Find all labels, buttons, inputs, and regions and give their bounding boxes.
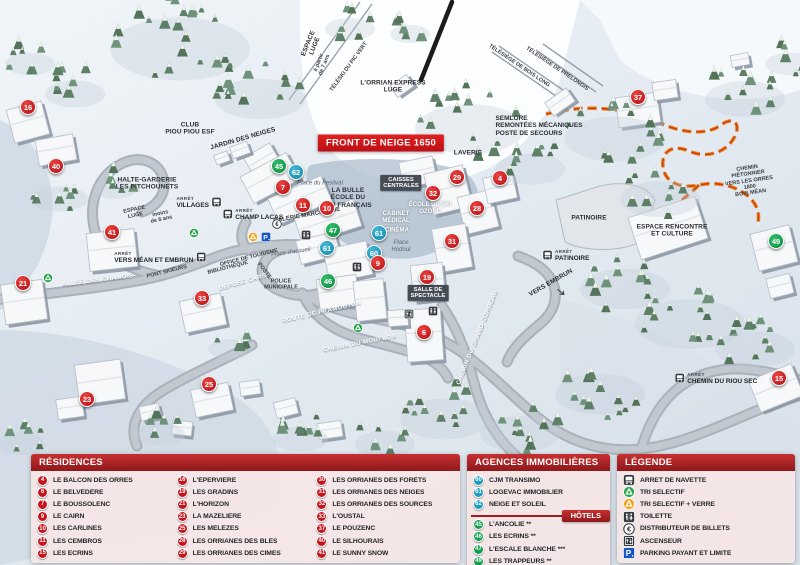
legend-item-number: 7 [37,499,48,510]
legend-key-item: PPARKING PAYANT ET LIMITÉ [623,547,789,559]
legende-panel: LÉGENDE ARRET DE NAVETTETRI SELECTIFTRI … [617,454,795,563]
legend-item-label: LES ECRINS ** [489,533,536,540]
legend-item: 33L'OUSTAL [316,511,454,523]
legend-item-number: 29 [177,548,188,559]
legend-item-number: 6 [37,487,48,498]
legend-item-number: 25 [177,523,188,534]
legend-key-label: TRI SELECTIF + VERRE [640,501,715,508]
agences-hotels-list: 60CJM TRANSIMO61LOGEVAC IMMOBILIER62NEIG… [467,471,610,565]
legend-item-label: LES ORRIANES DES BLÉS [193,538,278,545]
legend-item: 19LES GRADINS [177,486,315,498]
svg-text:P: P [626,549,632,558]
legend-item: 37LE POUZENC [316,523,454,535]
legend-item-label: LES ORRIANES DES FORÊTS [332,477,426,484]
legend-item-label: L'ANCOLIE ** [489,521,531,528]
legend-item-number: 49 [473,556,484,565]
legend-item-label: CJM TRANSIMO [489,477,540,484]
legend-item-label: L'ESCALE BLANCHE *** [489,546,565,553]
parking-icon: P [623,547,635,559]
legend-item-number: 31 [316,487,327,498]
legend-item-label: LES CARLINES [53,525,102,532]
legend-item-number: 41 [316,548,327,559]
legend-item-number: 30 [316,475,327,486]
legend-item: 7LE BOUSSOLENC [37,498,175,510]
legend-item-label: LES CEMBROS [53,538,102,545]
legend-item: 9LE CAIRN [37,511,175,523]
bus-icon [623,474,635,486]
legende-list: ARRET DE NAVETTETRI SELECTIFTRI SELECTIF… [617,471,795,563]
legend-item-number: 33 [316,511,327,522]
residences-column: 16L'ÉPERVIÈRE19LES GRADINS21L'HORIZON23L… [177,474,315,559]
legend-item-label: LE BALCON DES ORRES [53,477,133,484]
legend-item: 46LES ECRINS ** [473,531,604,543]
legend-item: 16L'ÉPERVIÈRE [177,474,315,486]
resort-map-page: CLUB PIOU PIOU ESFJARDIN DES NEIGESESPAC… [0,0,800,565]
legend-item-label: LE SILHOURAÏS [332,538,383,545]
legend-item-label: NEIGE ET SOLEIL [489,501,546,508]
residences-panel: RÉSIDENCES 4LE BALCON DES ORRES6LE BELVÉ… [31,454,460,563]
legend-item-number: 28 [177,536,188,547]
legend-item-label: L'OUSTAL [332,513,364,520]
legend-item-label: LE CAIRN [53,513,84,520]
legend-key-label: TOILETTE [640,513,672,520]
legend-item-number: 62 [473,499,484,510]
legend-key-item: TOILETTE [623,511,789,523]
euro-icon: € [623,523,635,535]
legend-item-label: LES GRADINS [193,489,238,496]
tri-orange-icon [623,498,635,510]
legend-item: 23LA MAZELIÈRE [177,511,315,523]
svg-text:€: € [627,524,631,533]
legend-item: 21L'HORIZON [177,498,315,510]
legend-item-number: 9 [37,511,48,522]
tri-green-icon [623,486,635,498]
legend-item-number: 37 [316,523,327,534]
residences-list: 4LE BALCON DES ORRES6LE BELVÉDÈRE7LE BOU… [31,471,460,563]
legend-item-label: LE BOUSSOLENC [53,501,110,508]
legend-key-item: TRI SELECTIF + VERRE [623,498,789,510]
legend-item: 31LES ORRIANES DES NEIGES [316,486,454,498]
legend-item: 62NEIGE ET SOLEIL [473,498,604,510]
elevator-icon [623,535,635,547]
legend-item-label: LES ORRIANES DES SOURCES [332,501,432,508]
legend-item-number: 61 [473,487,484,498]
legend-item: 6LE BELVÉDÈRE [37,486,175,498]
legend-item-number: 32 [316,499,327,510]
legend-item-label: L'HORIZON [193,501,229,508]
legend-item-number: 11 [37,536,48,547]
legend-item-number: 40 [316,536,327,547]
legend-item-number: 10 [37,523,48,534]
legend-item-label: LE BELVÉDÈRE [53,489,103,496]
legend-item-number: 23 [177,511,188,522]
legend-item-number: 46 [473,531,484,542]
legend-item: 11LES CEMBROS [37,535,175,547]
legend-item-number: 47 [473,544,484,555]
legend-item: 49LES TRAPPEURS ** [473,555,604,565]
legend-item-label: LE SUNNY SNOW [332,550,388,557]
hotels-divider: HÔTELS [471,515,606,517]
legend-item: 40LE SILHOURAÏS [316,535,454,547]
legend-item: 61LOGEVAC IMMOBILIER [473,486,604,498]
legend-item-number: 16 [177,475,188,486]
legend-key-item: ASCENSEUR [623,535,789,547]
residences-panel-title: RÉSIDENCES [31,454,460,471]
legend-item-label: LES ORRIANES DES CIMES [193,550,281,557]
legend-item-label: LOGEVAC IMMOBILIER [489,489,563,496]
hotels-title: HÔTELS [562,510,610,522]
legend-item: 10LES CARLINES [37,523,175,535]
legend-item-label: LE POUZENC [332,525,375,532]
legend-item-number: 45 [473,519,484,530]
legend-item: 60CJM TRANSIMO [473,474,604,486]
legend-item-label: LA MAZELIÈRE [193,513,242,520]
legend-item: 30LES ORRIANES DES FORÊTS [316,474,454,486]
legend-key-item: €DISTRIBUTEUR DE BILLETS [623,523,789,535]
legend-item-label: L'ÉPERVIÈRE [193,477,236,484]
legend-item: 47L'ESCALE BLANCHE *** [473,543,604,555]
legend-item-number: 21 [177,499,188,510]
legend-key-label: TRI SELECTIF [640,489,685,496]
legend-item: 25LES MÉLÈZES [177,523,315,535]
legend-item-number: 4 [37,475,48,486]
legend-item-label: LES ÉCRINS [53,550,93,557]
legend-item-number: 60 [473,475,484,486]
legende-panel-title: LÉGENDE [617,454,795,471]
legend-item-number: 15 [37,548,48,559]
legend-item: 29LES ORRIANES DES CIMES [177,547,315,559]
legend-item: 15LES ÉCRINS [37,547,175,559]
legend-item: 28LES ORRIANES DES BLÉS [177,535,315,547]
legend-key-label: DISTRIBUTEUR DE BILLETS [640,525,730,532]
legend-item-label: LES ORRIANES DES NEIGES [332,489,424,496]
legend-item-number: 19 [177,487,188,498]
legend-item: 4LE BALCON DES ORRES [37,474,175,486]
legend-key-item: ARRET DE NAVETTE [623,474,789,486]
front-de-neige-banner: FRONT DE NEIGE 1650 [318,135,444,152]
legend-item-label: LES TRAPPEURS ** [489,558,552,565]
agences-panel-title: AGENCES IMMOBILIÈRES [467,454,610,471]
legend-item-label: LES MÉLÈZES [193,525,239,532]
residences-column: 4LE BALCON DES ORRES6LE BELVÉDÈRE7LE BOU… [37,474,175,559]
legend-item: 41LE SUNNY SNOW [316,547,454,559]
legend-key-label: ASCENSEUR [640,538,682,545]
toilet-icon [623,511,635,523]
legend-key-label: ARRET DE NAVETTE [640,477,706,484]
agences-hotels-panel: AGENCES IMMOBILIÈRES 60CJM TRANSIMO61LOG… [467,454,610,565]
legend-key-item: TRI SELECTIF [623,486,789,498]
legend-item: 32LES ORRIANES DES SOURCES [316,498,454,510]
legend-key-label: PARKING PAYANT ET LIMITÉ [640,550,731,557]
residences-column: 30LES ORRIANES DES FORÊTS31LES ORRIANES … [316,474,454,559]
